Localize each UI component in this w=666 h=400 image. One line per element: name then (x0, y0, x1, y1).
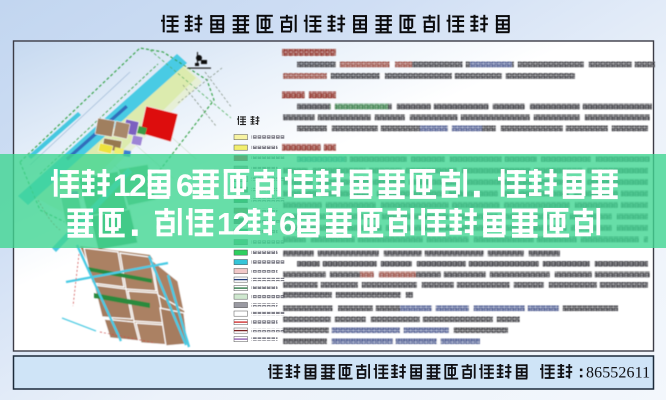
svg-text:2: 2 (233, 207, 250, 242)
svg-text:86552611: 86552611 (586, 365, 650, 382)
svg-text:6: 6 (176, 167, 194, 203)
svg-text:6: 6 (279, 207, 296, 242)
svg-text:2: 2 (129, 167, 147, 203)
